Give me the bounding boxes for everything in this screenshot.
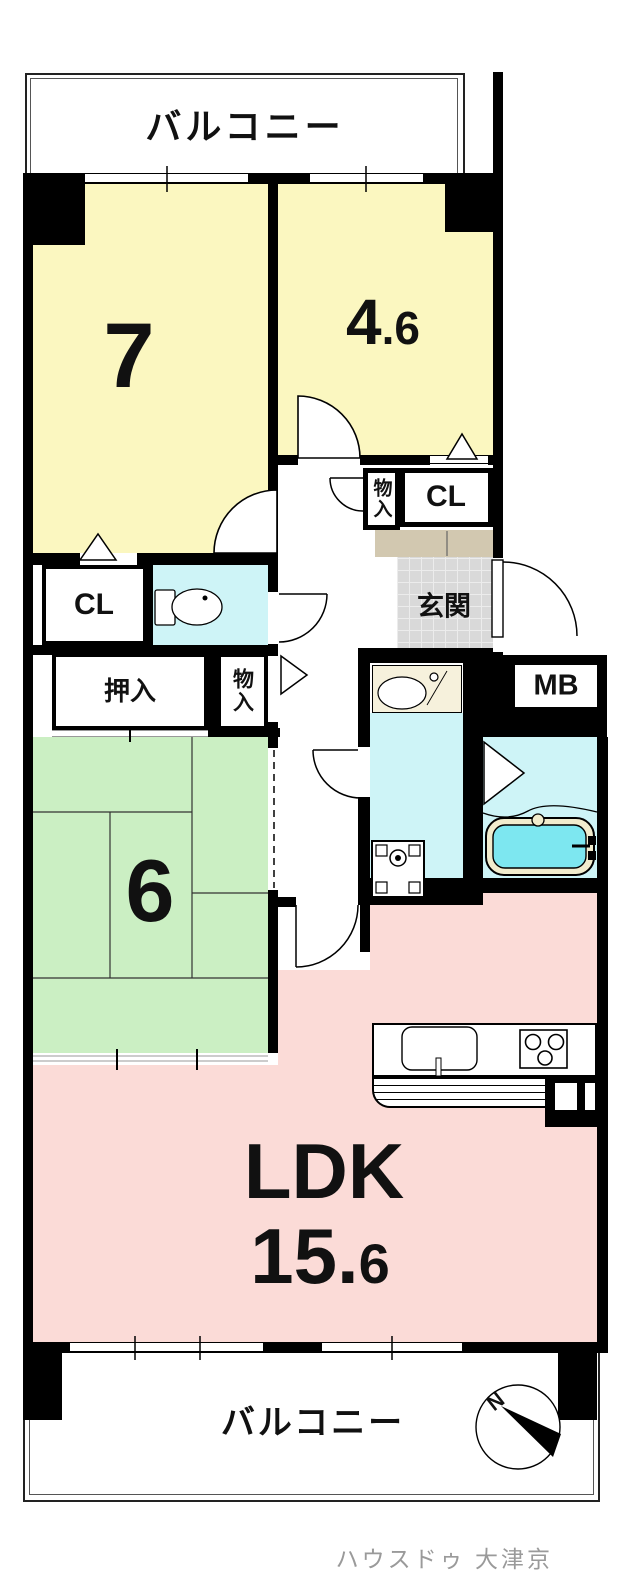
tatami-size-label: 6 (126, 847, 175, 935)
oshiire-label: 押入 (104, 678, 156, 704)
tatami-boundary-lines (33, 1056, 268, 1061)
room46-size-label: 4 .6 (346, 290, 420, 354)
washing-machine-icon (372, 841, 424, 897)
door-swing-icon (313, 750, 361, 798)
balcony-top-label: バルコニー (145, 109, 344, 145)
storage-left-label: 物入 (232, 668, 253, 714)
balcony-bottom-label: バルコニー (221, 1406, 405, 1440)
watermark: ハウスドゥ 大津京 (336, 1540, 553, 1573)
vanity-sink-icon (378, 671, 447, 709)
ldk-size-dec: 6 (359, 1236, 390, 1292)
entrance-door (492, 560, 577, 637)
entrance-label: 玄関 (417, 594, 471, 621)
fixtures-overlay (0, 0, 631, 1573)
door-swing-icon (330, 478, 363, 511)
closet-top-label: CL (426, 482, 466, 512)
kitchen-sink-icon (402, 1027, 477, 1076)
room46-size-dec: .6 (382, 305, 420, 351)
storage-top-label: 物入 (372, 478, 391, 520)
room7-size-label: 7 (103, 310, 154, 402)
ldk-size-label: 15. 6 (250, 1217, 390, 1295)
door-swing-icon (279, 594, 327, 642)
meter-box-label: MB (533, 672, 578, 701)
door-swing-icon (214, 490, 277, 553)
floor-plan: バルコニー 7 4 .6 物入 CL 玄関 CL 押入 物入 MB 6 LDK … (0, 0, 631, 1573)
door-swing-icon (298, 396, 360, 458)
room46-size-int: 4 (346, 290, 382, 354)
stove-burners-icon (520, 1030, 567, 1068)
ldk-size-int: 15. (250, 1217, 358, 1295)
closet-left-label: CL (74, 590, 114, 620)
bathtub-icon (483, 806, 597, 875)
toilet-icon (155, 589, 222, 625)
ldk-name-label: LDK (244, 1132, 404, 1210)
door-swing-icon (296, 905, 358, 967)
